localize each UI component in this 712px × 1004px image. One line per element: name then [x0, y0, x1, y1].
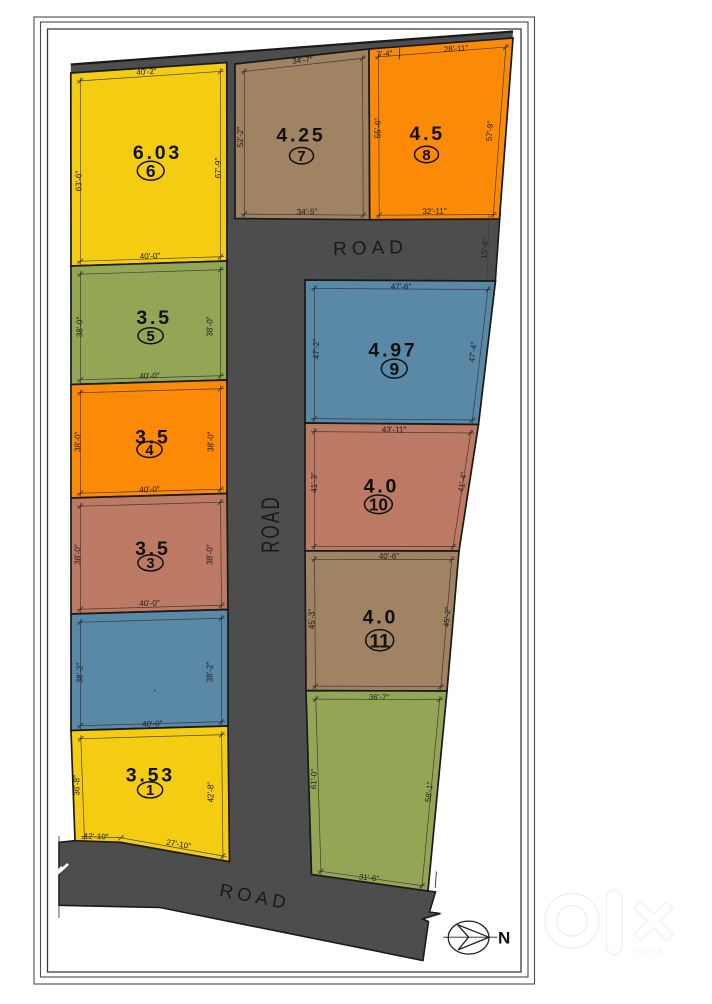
svg-text:34'-5″: 34'-5″ — [297, 207, 318, 216]
svg-text:45'-2″: 45'-2″ — [442, 606, 453, 627]
svg-text:9: 9 — [389, 359, 399, 379]
svg-text:8: 8 — [422, 147, 430, 164]
svg-text:47'-2″: 47'-2″ — [312, 339, 321, 360]
svg-text:38'-2″: 38'-2″ — [206, 662, 215, 683]
svg-text:5: 5 — [146, 329, 154, 345]
svg-text:38'-0″: 38'-0″ — [207, 431, 216, 452]
svg-text:55'-6″: 55'-6″ — [373, 118, 382, 139]
svg-text:4.25: 4.25 — [276, 125, 325, 147]
svg-text:4: 4 — [145, 443, 154, 459]
svg-text:38'-2″: 38'-2″ — [75, 663, 84, 684]
svg-text:38'-0″: 38'-0″ — [74, 431, 83, 452]
svg-text:28'-11″: 28'-11″ — [444, 43, 469, 54]
svg-text:ROAD: ROAD — [333, 237, 408, 260]
svg-text:1: 1 — [146, 783, 154, 799]
svg-text:63'-6″: 63'-6″ — [74, 171, 83, 192]
svg-text:45'-3″: 45'-3″ — [308, 609, 317, 630]
svg-text:40'-0″: 40'-0″ — [139, 485, 160, 495]
svg-text:40'-2″: 40'-2″ — [136, 67, 157, 77]
svg-text:4.5: 4.5 — [409, 123, 445, 145]
svg-text:61'-0″: 61'-0″ — [309, 769, 319, 790]
svg-text:52'-2″: 52'-2″ — [236, 127, 245, 148]
svg-text:3.5: 3.5 — [136, 307, 172, 329]
svg-text:36'-8″: 36'-8″ — [73, 775, 82, 796]
svg-text:40'-0″: 40'-0″ — [140, 251, 161, 261]
svg-text:43'-11″: 43'-11″ — [382, 426, 406, 435]
svg-text:4.0: 4.0 — [363, 606, 399, 628]
svg-text:67'-9″: 67'-9″ — [214, 158, 223, 179]
svg-text:6: 6 — [146, 161, 156, 181]
svg-text:6.03: 6.03 — [133, 142, 182, 164]
svg-text:12'-10″: 12'-10″ — [84, 832, 109, 842]
svg-text:40'-0″: 40'-0″ — [139, 598, 160, 608]
svg-text:38'-0″: 38'-0″ — [74, 544, 83, 565]
svg-text:ROAD: ROAD — [257, 495, 285, 553]
svg-text:32'-11″: 32'-11″ — [422, 207, 447, 216]
svg-text:47'-6″: 47'-6″ — [391, 282, 412, 291]
svg-text:N: N — [498, 929, 510, 948]
svg-text:11: 11 — [369, 630, 390, 652]
svg-text:57'-9″: 57'-9″ — [485, 120, 495, 141]
svg-text:3: 3 — [146, 556, 154, 572]
svg-text:38'-0″: 38'-0″ — [75, 317, 84, 338]
svg-text:7'-4″: 7'-4″ — [376, 49, 393, 59]
svg-text:7: 7 — [297, 148, 305, 165]
svg-text:10: 10 — [369, 494, 388, 514]
svg-text:40'-0″: 40'-0″ — [142, 719, 163, 729]
svg-text:36'-7″: 36'-7″ — [369, 693, 390, 702]
svg-text:41'-3″: 41'-3″ — [310, 472, 319, 493]
svg-text:34'-7″: 34'-7″ — [292, 55, 313, 66]
svg-text:38'-0″: 38'-0″ — [205, 544, 214, 565]
svg-text:INDIA: INDIA — [634, 950, 665, 956]
svg-text:40'-6″: 40'-6″ — [379, 552, 400, 561]
svg-text:42'-8″: 42'-8″ — [207, 782, 216, 803]
svg-text:40'-0″: 40'-0″ — [139, 371, 160, 381]
svg-text:38'-0″: 38'-0″ — [205, 316, 214, 337]
